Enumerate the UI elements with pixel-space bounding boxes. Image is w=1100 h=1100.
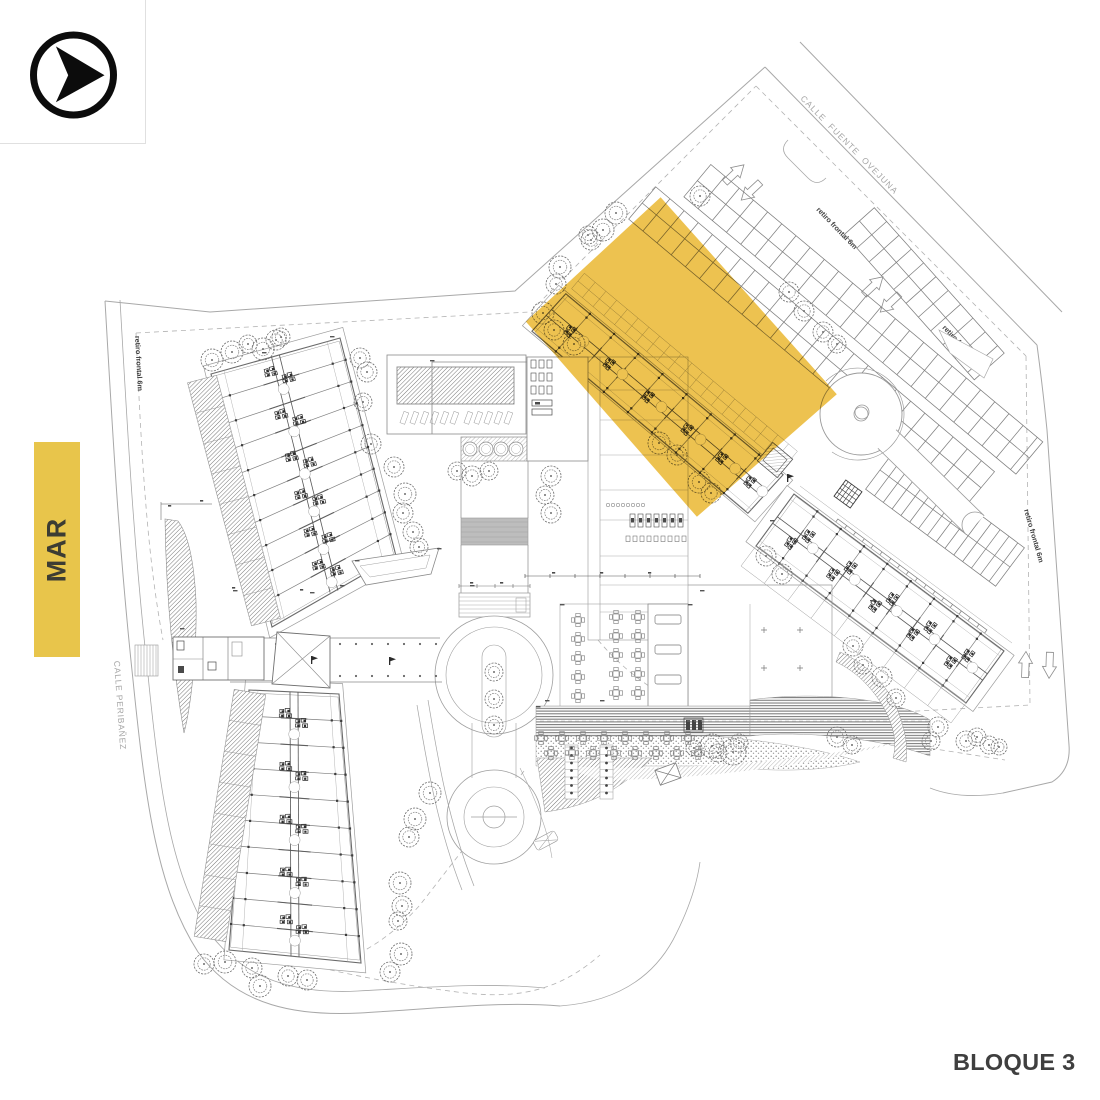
svg-text:retiro frontal 6m: retiro frontal 6m	[1022, 508, 1046, 563]
svg-text:retiro frontal 6m: retiro frontal 6m	[815, 205, 860, 251]
svg-text:CALLE PERIBAÑEZ: CALLE PERIBAÑEZ	[112, 660, 128, 750]
svg-text:retiro frontal 6m: retiro frontal 6m	[133, 336, 145, 392]
svg-text:CALLE FUENTE OVEJUNA: CALLE FUENTE OVEJUNA	[799, 93, 901, 196]
